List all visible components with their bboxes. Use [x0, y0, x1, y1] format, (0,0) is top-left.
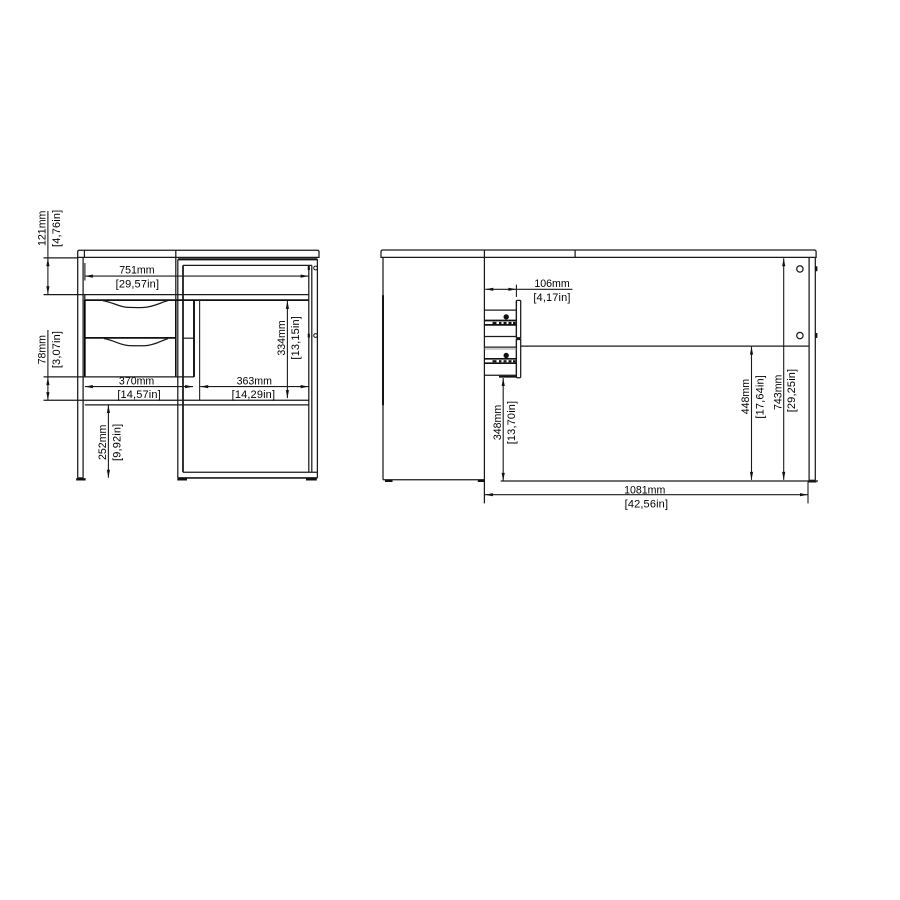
svg-text:348mm: 348mm: [492, 405, 504, 440]
svg-text:121mm: 121mm: [37, 210, 49, 245]
svg-text:[29,57in]: [29,57in]: [116, 279, 160, 291]
svg-text:743mm: 743mm: [772, 374, 784, 409]
svg-text:1081mm: 1081mm: [624, 484, 665, 496]
svg-text:[9,92in]: [9,92in]: [111, 424, 123, 461]
svg-text:[4,17in]: [4,17in]: [533, 292, 570, 304]
svg-text:751mm: 751mm: [119, 264, 154, 276]
svg-text:[13,15in]: [13,15in]: [290, 316, 302, 360]
svg-text:[42,56in]: [42,56in]: [625, 498, 669, 510]
svg-text:370mm: 370mm: [119, 375, 154, 387]
svg-text:[29,25in]: [29,25in]: [786, 369, 798, 413]
svg-text:[4,76in]: [4,76in]: [51, 210, 63, 247]
svg-text:106mm: 106mm: [534, 278, 569, 290]
svg-text:[14,29in]: [14,29in]: [232, 389, 276, 401]
svg-text:[14,57in]: [14,57in]: [117, 389, 161, 401]
svg-text:[3,07in]: [3,07in]: [51, 331, 63, 368]
svg-text:78mm: 78mm: [37, 335, 49, 365]
svg-text:334mm: 334mm: [276, 320, 288, 355]
svg-text:[13,70in]: [13,70in]: [506, 401, 518, 445]
svg-text:[17,64in]: [17,64in]: [754, 375, 766, 419]
svg-text:448mm: 448mm: [740, 379, 752, 414]
svg-text:363mm: 363mm: [237, 375, 272, 387]
svg-text:252mm: 252mm: [97, 424, 109, 459]
